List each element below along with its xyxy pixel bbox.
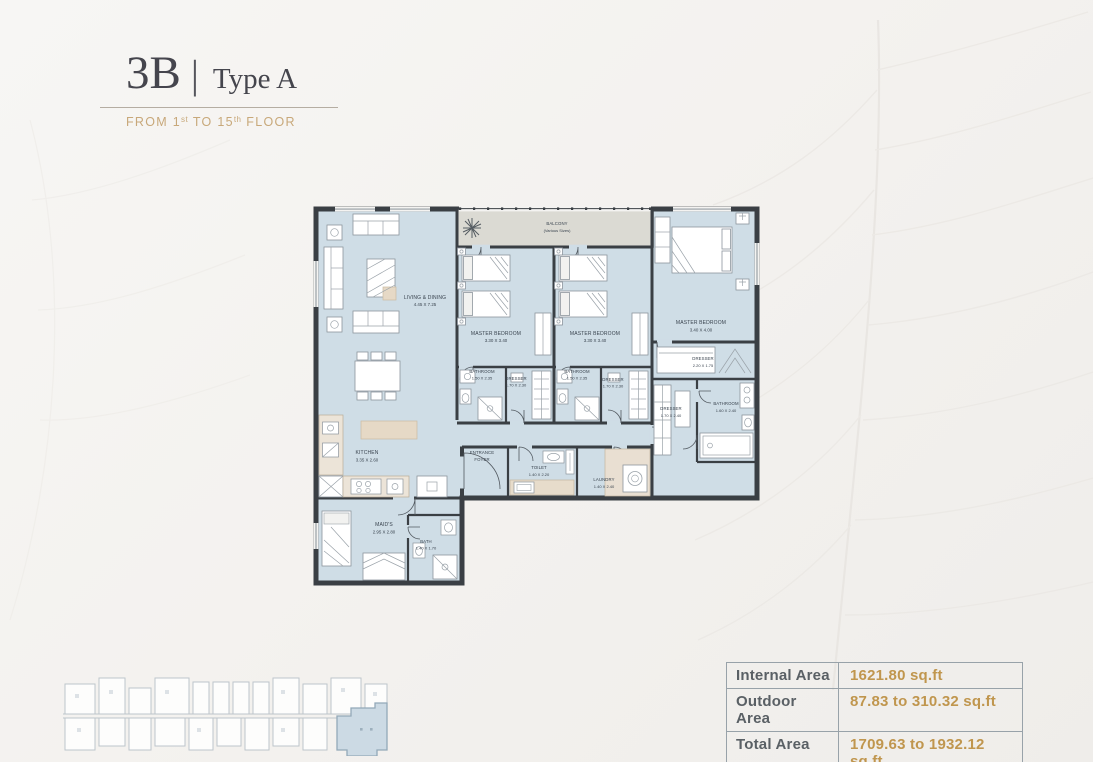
page-title: 3B | Type A bbox=[100, 50, 340, 98]
svg-text:4.45 X 7.25: 4.45 X 7.25 bbox=[414, 302, 437, 307]
internal-area-label: Internal Area bbox=[727, 663, 839, 688]
svg-text:MASTER BEDROOM: MASTER BEDROOM bbox=[676, 320, 726, 326]
leaf-texture-decoration-left bbox=[0, 80, 300, 640]
building-key-plan bbox=[55, 668, 395, 756]
svg-text:DRESSER: DRESSER bbox=[602, 377, 623, 382]
svg-text:MASTER BEDROOM: MASTER BEDROOM bbox=[570, 331, 620, 337]
area-summary-table: Internal Area 1621.80 sq.ft Outdoor Area… bbox=[726, 662, 1023, 762]
svg-text:KITCHEN: KITCHEN bbox=[356, 450, 379, 456]
svg-text:TOILET: TOILET bbox=[531, 465, 547, 470]
svg-text:1.40 X 2.20: 1.40 X 2.20 bbox=[529, 472, 550, 477]
title-underline bbox=[100, 107, 338, 108]
unit-code: 3B bbox=[126, 50, 181, 97]
svg-text:(Various Sizes): (Various Sizes) bbox=[544, 228, 571, 233]
svg-text:3.35 X 2.60: 3.35 X 2.60 bbox=[356, 458, 379, 463]
brochure-page: 3B | Type A FROM 1st TO 15th FLOOR bbox=[0, 0, 1093, 762]
svg-text:1.70 X 2.30: 1.70 X 2.30 bbox=[603, 384, 624, 389]
room-label-dresser-1: DRESSER 1.70 X 2.30 bbox=[505, 376, 527, 388]
outdoor-area-label: Outdoor Area bbox=[727, 689, 839, 731]
svg-text:BATHROOM: BATHROOM bbox=[469, 369, 495, 374]
svg-text:1.70 X 2.40: 1.70 X 2.40 bbox=[661, 413, 682, 418]
internal-area-value: 1621.80 sq.ft bbox=[839, 663, 1022, 688]
table-row-internal-area: Internal Area 1621.80 sq.ft bbox=[727, 663, 1022, 689]
svg-text:LIVING & DINING: LIVING & DINING bbox=[404, 295, 446, 301]
svg-text:2.20 X 1.75: 2.20 X 1.75 bbox=[693, 363, 714, 368]
room-label-bathroom-2: BATHROOM 1.50 X 2.35 bbox=[564, 369, 590, 381]
svg-text:2.95 X 2.80: 2.95 X 2.80 bbox=[373, 530, 396, 535]
svg-text:3.30 X 3.40: 3.30 X 3.40 bbox=[584, 338, 607, 343]
total-area-value: 1709.63 to 1932.12 sq.ft bbox=[839, 732, 1022, 762]
svg-text:ENTRANCE: ENTRANCE bbox=[470, 450, 494, 455]
svg-text:MAID'S: MAID'S bbox=[375, 522, 393, 528]
total-area-label: Total Area bbox=[727, 732, 839, 762]
svg-text:BATHROOM: BATHROOM bbox=[713, 401, 739, 406]
svg-text:1.50 X 2.35: 1.50 X 2.35 bbox=[567, 376, 588, 381]
svg-text:1.40 X 1.70: 1.40 X 1.70 bbox=[416, 546, 437, 551]
svg-text:3.40 X 4.00: 3.40 X 4.00 bbox=[690, 328, 713, 333]
svg-text:1.70 X 2.30: 1.70 X 2.30 bbox=[506, 383, 527, 388]
svg-text:1.40 X 2.40: 1.40 X 2.40 bbox=[594, 484, 615, 489]
svg-text:BATH: BATH bbox=[420, 539, 432, 544]
room-label-dresser-2: DRESSER 1.70 X 2.30 bbox=[602, 377, 624, 389]
table-row-total-area: Total Area 1709.63 to 1932.12 sq.ft bbox=[727, 732, 1022, 762]
svg-text:3.30 X 3.40: 3.30 X 3.40 bbox=[485, 338, 508, 343]
floor-range-subtitle: FROM 1st TO 15th FLOOR bbox=[100, 115, 340, 129]
svg-text:MASTER BEDROOM: MASTER BEDROOM bbox=[471, 331, 521, 337]
floorplan-drawing: BALCONY (Various Sizes) LIVING & DINING … bbox=[305, 195, 765, 595]
svg-text:1.50 X 2.35: 1.50 X 2.35 bbox=[472, 376, 493, 381]
plant-icon bbox=[463, 218, 481, 238]
svg-text:BATHROOM: BATHROOM bbox=[564, 369, 590, 374]
svg-text:1.60 X 2.40: 1.60 X 2.40 bbox=[716, 408, 737, 413]
svg-text:DRESSER: DRESSER bbox=[660, 406, 681, 411]
svg-text:DRESSER: DRESSER bbox=[505, 376, 526, 381]
room-label-bathroom-1: BATHROOM 1.50 X 2.35 bbox=[469, 369, 495, 381]
header: 3B | Type A FROM 1st TO 15th FLOOR bbox=[100, 50, 340, 129]
svg-text:DRESSER: DRESSER bbox=[692, 356, 713, 361]
svg-text:FOYER: FOYER bbox=[474, 457, 489, 462]
table-row-outdoor-area: Outdoor Area 87.83 to 310.32 sq.ft bbox=[727, 689, 1022, 732]
outdoor-area-value: 87.83 to 310.32 sq.ft bbox=[839, 689, 1022, 731]
title-divider: | bbox=[191, 51, 199, 98]
unit-type: Type A bbox=[213, 63, 297, 96]
svg-text:BALCONY: BALCONY bbox=[546, 221, 567, 226]
balcony-area bbox=[457, 206, 653, 247]
svg-text:LAUNDRY: LAUNDRY bbox=[593, 477, 614, 482]
